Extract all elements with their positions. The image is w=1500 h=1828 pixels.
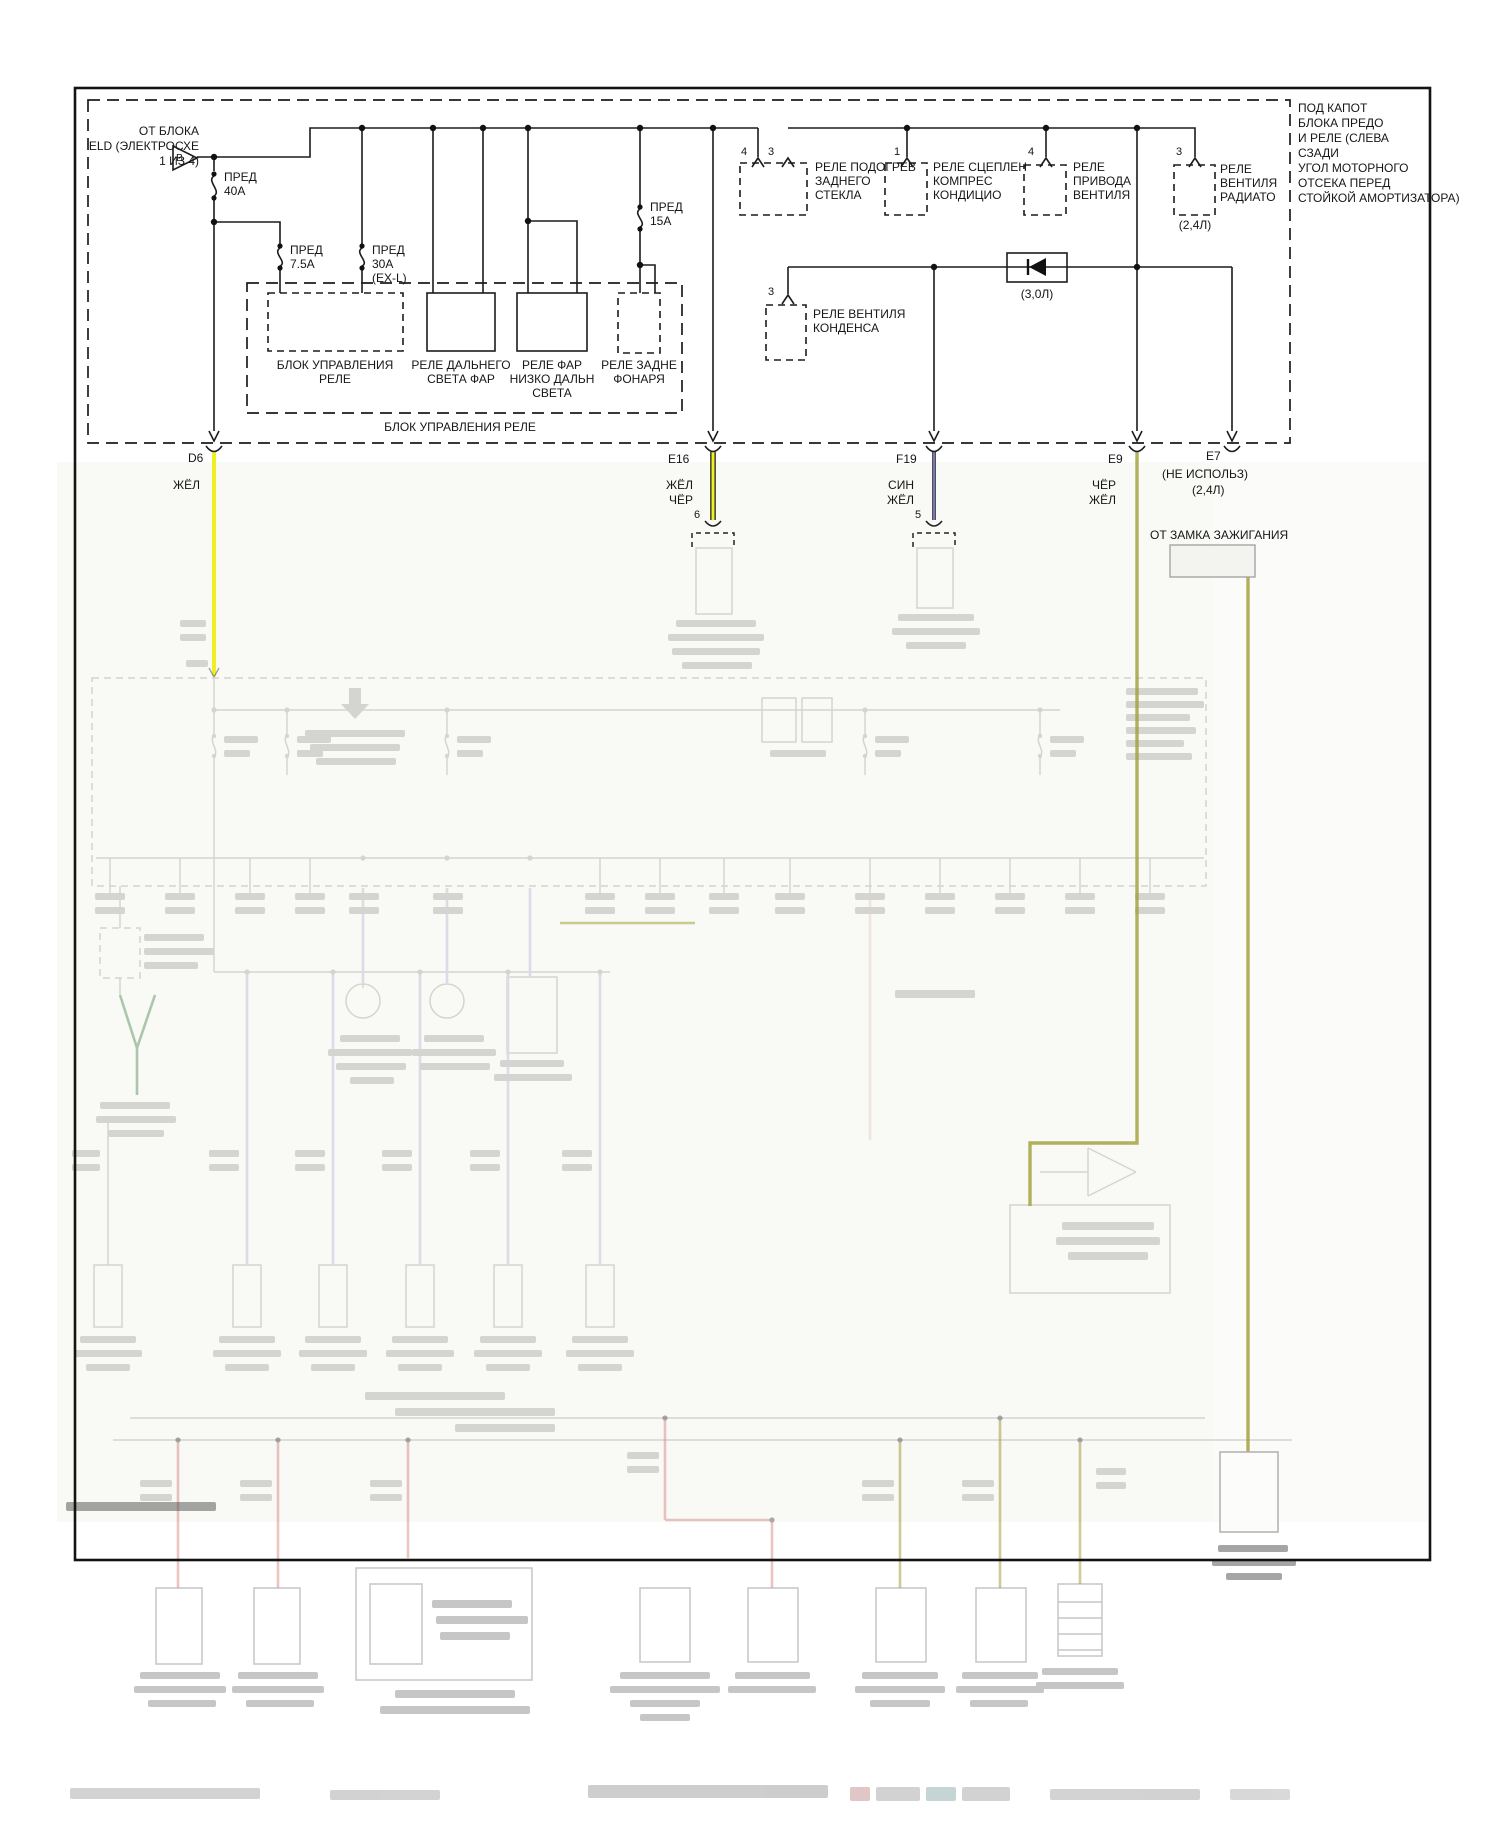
- wiring-diagram-page: ОТ БЛОКАELD (ЭЛЕКТРОСХЕ1 ИЗ 4) B ПРЕД40А…: [0, 0, 1500, 1828]
- radiator-fan-relay-note: (2,4Л): [1160, 218, 1230, 232]
- source-tag: B: [176, 151, 183, 165]
- connector-e7: E7: [1206, 449, 1221, 463]
- fuse-30a-label: ПРЕД30А(EX-L): [372, 243, 407, 285]
- connector-e7-note: (НЕ ИСПОЛЬЗ): [1162, 467, 1248, 481]
- pin-number: 4: [1028, 146, 1034, 158]
- relay-control-unit-box: [268, 293, 403, 351]
- high-beam-relay-box: [427, 293, 495, 351]
- fuse-7-5a-label: ПРЕД7.5А: [290, 243, 323, 271]
- relay-unit-1-label: БЛОК УПРАВЛЕНИЯРЕЛЕ: [262, 358, 408, 386]
- fade-tint-right: [1213, 462, 1430, 1522]
- pin-number: 5: [915, 509, 921, 521]
- connector-e7-note2: (2,4Л): [1192, 483, 1225, 497]
- fuse-40a-label: ПРЕД40А: [224, 170, 257, 198]
- connector-d6: D6: [188, 451, 203, 465]
- ac-clutch-relay-label: РЕЛЕ СЦЕПЛЕНКОМПРЕСКОНДИЦИО: [933, 160, 1027, 202]
- pin-number: 4: [741, 146, 747, 158]
- rear-defogger-relay-box: [740, 163, 807, 215]
- radiator-fan-relay-label: РЕЛЕВЕНТИЛЯРАДИАТО: [1220, 162, 1277, 204]
- connector-brackets: [206, 446, 1240, 452]
- diode-note: (3,0Л): [1004, 287, 1070, 301]
- ignition-feed-label: ОТ ЗАМКА ЗАЖИГАНИЯ: [1150, 528, 1288, 542]
- pin-number: 3: [1176, 146, 1182, 158]
- pin-number: 6: [694, 509, 700, 521]
- fuse-terminal-dots: [211, 171, 642, 270]
- wire-color-f19: СИНЖЁЛ: [852, 478, 914, 508]
- connector-f19: F19: [896, 452, 917, 466]
- pin-number: 3: [768, 286, 774, 298]
- diode-triangle: [1029, 258, 1046, 276]
- header-note: ПОД КАПОТБЛОКА ПРЕДОИ РЕЛЕ (СЛЕВАСЗАДИУГ…: [1298, 101, 1460, 206]
- underhood-fusebox-outline: [88, 100, 1290, 443]
- pin-number: 3: [768, 146, 774, 158]
- pin-number: 1: [894, 146, 900, 158]
- wire-color-d6: ЖЁЛ: [132, 478, 200, 493]
- fuse-15a-label: ПРЕД15А: [650, 200, 683, 228]
- radiator-fan-relay-box: [1174, 165, 1215, 215]
- connector-e9: E9: [1108, 452, 1123, 466]
- fan-drive-relay-box: [1024, 165, 1066, 215]
- relay-unit-4-label: РЕЛЕ ЗАДНЕФОНАРЯ: [575, 358, 703, 386]
- wire-color-e16: ЖЁЛЧЁР: [625, 478, 693, 508]
- connector-e16: E16: [668, 452, 689, 466]
- taillight-relay-box: [618, 293, 660, 353]
- low-high-beam-relay-box: [517, 293, 587, 351]
- condenser-fan-relay-label: РЕЛЕ ВЕНТИЛЯКОНДЕНСА: [813, 307, 905, 335]
- wire-color-e9: ЧЁРЖЁЛ: [1052, 478, 1116, 508]
- bottom-right-component: [1220, 1452, 1278, 1532]
- diagram-canvas: [0, 0, 1500, 1828]
- rear-defogger-relay-label: РЕЛЕ ПОДОГРЕВЗАДНЕГОСТЕКЛА: [815, 160, 916, 202]
- fan-drive-relay-label: РЕЛЕПРИВОДАВЕНТИЛЯ: [1073, 160, 1131, 202]
- condenser-fan-relay-box: [766, 305, 806, 360]
- relay-box-label: БЛОК УПРАВЛЕНИЯ РЕЛЕ: [340, 420, 580, 434]
- fade-tint-left: [57, 462, 1213, 1522]
- ignition-switch-box: [1170, 545, 1255, 577]
